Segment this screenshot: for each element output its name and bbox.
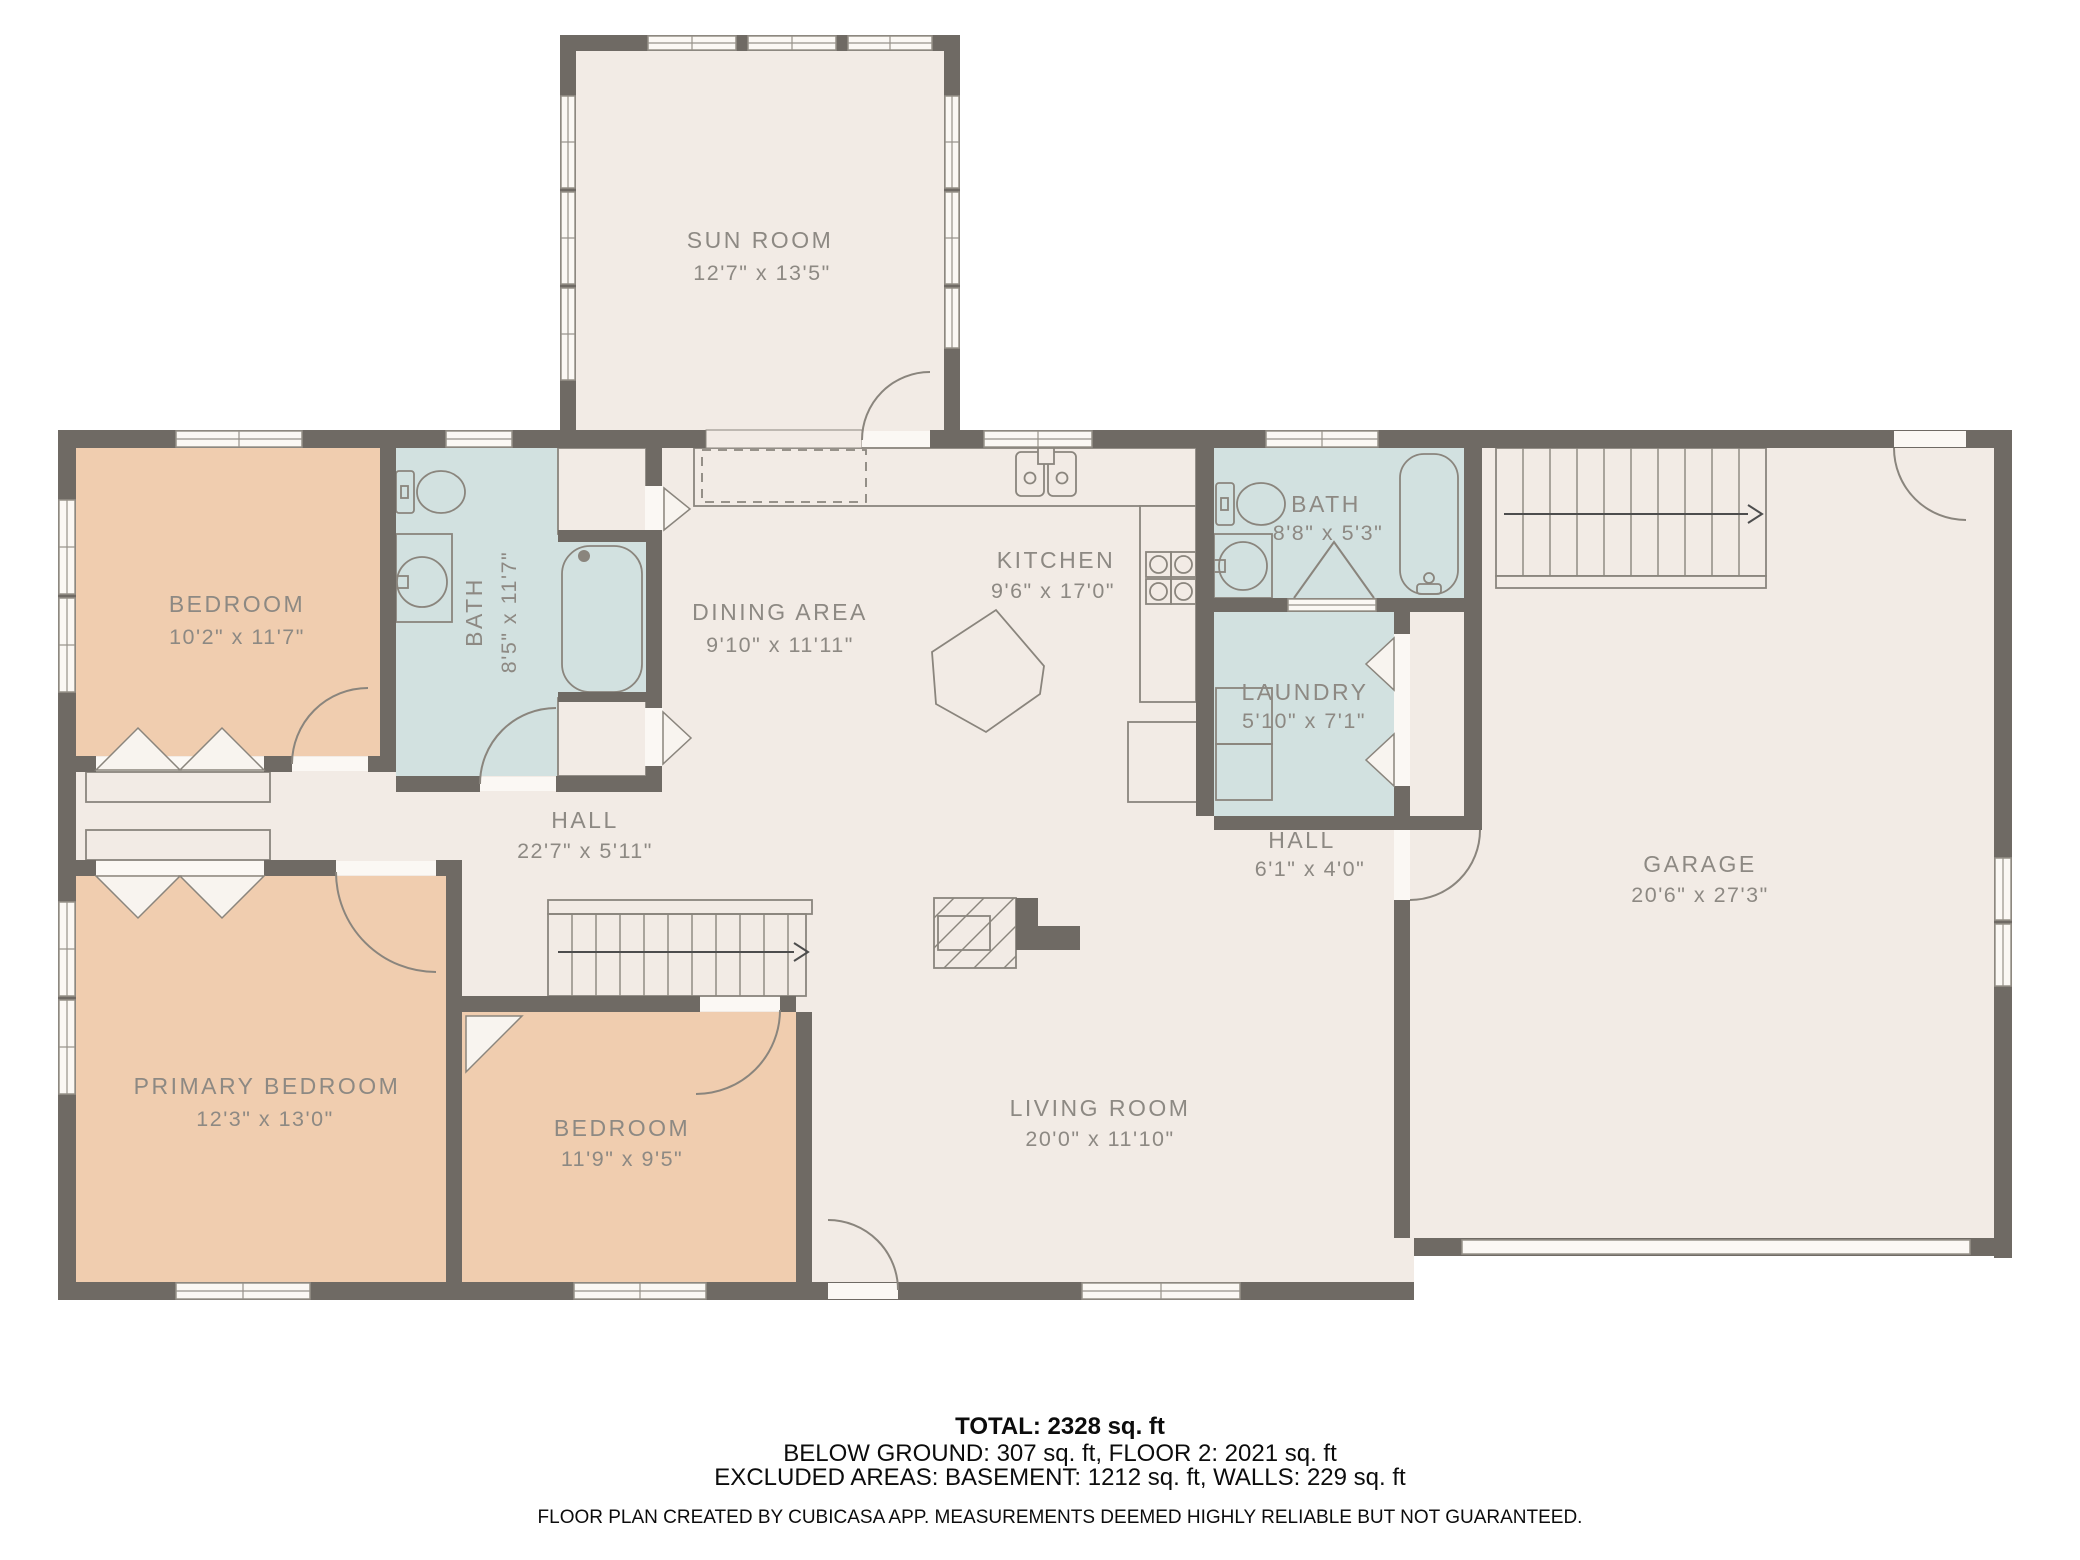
window [648, 36, 736, 50]
window [59, 598, 75, 692]
dims-hall-main: 22'7" x 5'11" [517, 839, 653, 863]
window [1995, 858, 2011, 920]
label-hall-main: HALL [551, 807, 619, 833]
window [945, 96, 959, 188]
window [59, 500, 75, 594]
label-primary-bedroom: PRIMARY BEDROOM [134, 1073, 401, 1099]
dims-hall-small: 6'1" x 4'0" [1255, 857, 1366, 881]
window [176, 1283, 310, 1299]
window [848, 36, 932, 50]
floor-plan: SUN ROOM 12'7" x 13'5" BEDROOM 10'2" x 1… [0, 0, 2080, 1560]
dims-primary-bedroom: 12'3" x 13'0" [196, 1107, 333, 1131]
label-sun-room: SUN ROOM [687, 227, 834, 253]
label-bath-right: BATH [1291, 491, 1361, 517]
label-garage: GARAGE [1643, 851, 1756, 877]
garage-door [1462, 1240, 1970, 1254]
window [1266, 431, 1378, 447]
label-dining: DINING AREA [692, 599, 868, 625]
window [561, 288, 575, 380]
dims-sun-room: 12'7" x 13'5" [693, 261, 830, 285]
dims-garage: 20'6" x 27'3" [1631, 883, 1768, 907]
dims-bedroom-top: 10'2" x 11'7" [169, 625, 305, 649]
label-living-room: LIVING ROOM [1010, 1095, 1191, 1121]
label-bedroom-bottom: BEDROOM [554, 1115, 690, 1141]
footer-excluded: EXCLUDED AREAS: BASEMENT: 1212 sq. ft, W… [714, 1464, 1406, 1491]
dims-bedroom-bottom: 11'9" x 9'5" [561, 1147, 683, 1171]
label-bath-left: BATH [461, 577, 487, 647]
window [945, 288, 959, 348]
label-kitchen: KITCHEN [997, 547, 1115, 573]
dims-living-room: 20'0" x 11'10" [1025, 1127, 1174, 1151]
dims-dining: 9'10" x 11'11" [706, 633, 854, 657]
dims-kitchen: 9'6" x 17'0" [991, 579, 1115, 603]
label-hall-small: HALL [1268, 827, 1336, 853]
window [59, 902, 75, 996]
refrigerator [1128, 722, 1202, 802]
window [1082, 1283, 1240, 1299]
dims-laundry: 5'10" x 7'1" [1242, 709, 1366, 733]
dims-bath-left: 8'5" x 11'7" [497, 551, 521, 673]
window [176, 431, 302, 447]
window [1995, 924, 2011, 986]
window [574, 1283, 706, 1299]
label-bedroom-top: BEDROOM [169, 591, 305, 617]
footer-areas: BELOW GROUND: 307 sq. ft, FLOOR 2: 2021 … [783, 1440, 1337, 1467]
window [446, 431, 512, 447]
footer-disclaimer: FLOOR PLAN CREATED BY CUBICASA APP. MEAS… [538, 1507, 1583, 1528]
window [748, 36, 836, 50]
label-laundry: LAUNDRY [1242, 679, 1369, 705]
window [561, 192, 575, 284]
window [945, 192, 959, 284]
window [59, 1000, 75, 1094]
dims-bath-right: 8'8" x 5'3" [1273, 521, 1384, 545]
window [1288, 599, 1376, 611]
footer-total: TOTAL: 2328 sq. ft [955, 1413, 1165, 1440]
window [984, 431, 1092, 447]
window [561, 96, 575, 188]
